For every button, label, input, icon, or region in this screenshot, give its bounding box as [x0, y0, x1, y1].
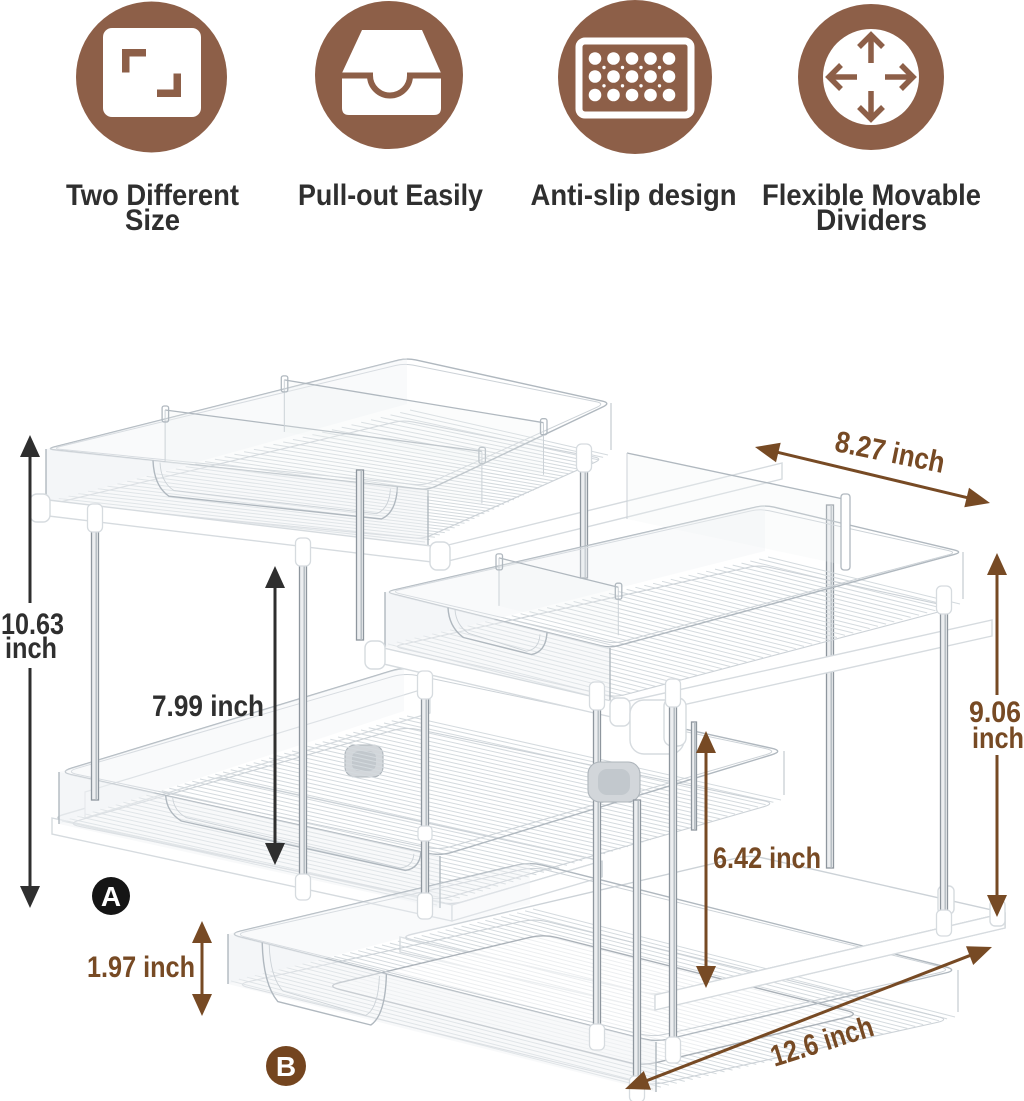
svg-text:Pull-out Easily: Pull-out Easily: [298, 179, 483, 212]
svg-text:6.42 inch: 6.42 inch: [713, 842, 821, 875]
svg-text:B: B: [276, 1051, 296, 1082]
svg-text:7.99 inch: 7.99 inch: [152, 690, 264, 723]
svg-text:Dividers: Dividers: [816, 204, 927, 237]
svg-text:inch: inch: [972, 722, 1024, 755]
svg-text:Size: Size: [125, 204, 180, 237]
svg-text:1.97 inch: 1.97 inch: [87, 951, 195, 984]
svg-text:Anti-slip design: Anti-slip design: [531, 179, 737, 212]
svg-text:inch: inch: [5, 632, 57, 665]
svg-text:A: A: [101, 881, 121, 912]
